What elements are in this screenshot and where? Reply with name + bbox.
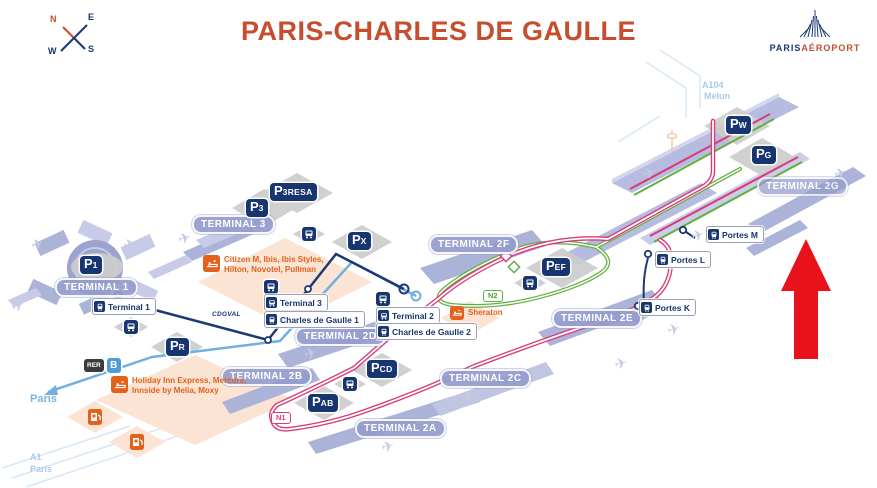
station-terminal-2[interactable]: Terminal 2 [376, 307, 440, 324]
hotel-bed-icon [203, 255, 220, 272]
station-portes-l[interactable]: Portes L [655, 251, 711, 268]
parking-pw[interactable]: PW [726, 116, 751, 134]
compass-n: N [50, 14, 57, 24]
terminal-3-badge[interactable]: TERMINAL 3 [192, 215, 275, 234]
parking-pg[interactable]: PG [752, 146, 776, 164]
terminal-2c-badge[interactable]: TERMINAL 2C [440, 369, 531, 388]
bus-icon [266, 297, 277, 308]
bus-stop-icon [376, 292, 390, 306]
plane-icon: ✈ [176, 228, 194, 249]
station-portes-k[interactable]: Portes K [639, 299, 696, 316]
hotel-sheraton[interactable]: Sheraton [450, 306, 503, 320]
parking-pcd[interactable]: PCD [367, 360, 397, 378]
station-terminal-1[interactable]: Terminal 1 [92, 298, 156, 315]
road-n1-box: N1 [271, 412, 291, 424]
road-n2-box: N2 [483, 290, 503, 302]
rer-b-badge[interactable]: RER B [84, 358, 121, 373]
terminal-1-badge[interactable]: TERMINAL 1 [55, 278, 138, 297]
eiffel-rays-icon [793, 8, 837, 38]
compass-w: W [48, 46, 57, 56]
station-charles-de-gaulle-1[interactable]: Charles de Gaulle 1 [264, 311, 365, 328]
bus-stop-icon [523, 276, 537, 290]
hotel-group-roissypole[interactable]: Holiday Inn Express, Mercure, Innside by… [111, 376, 246, 395]
bus-stop-icon [302, 227, 316, 241]
plane-icon: ✈ [665, 319, 682, 340]
parking-px[interactable]: PX [348, 232, 371, 250]
red-annotation-arrow [781, 239, 831, 359]
station-charles-de-gaulle-2[interactable]: Charles de Gaulle 2 [376, 323, 477, 340]
parking-p3resa[interactable]: P3RESA [270, 183, 317, 201]
plane-icon: ✈ [689, 225, 706, 246]
rer-icon: RER [84, 359, 104, 372]
station-portes-m[interactable]: Portes M [706, 226, 764, 243]
train-icon [708, 229, 719, 240]
terminal-2a-badge[interactable]: TERMINAL 2A [355, 419, 446, 438]
bus-stop-icon [124, 320, 138, 334]
compass-e: E [88, 12, 94, 22]
parking-pab[interactable]: PAB [308, 394, 338, 412]
road-a1-label: A1 [30, 452, 42, 462]
hotel-bed-icon [450, 306, 464, 320]
parking-pef[interactable]: PEF [542, 258, 570, 276]
logo-word-aeroport: AÉROPORT [801, 43, 860, 53]
plane-icon: ✈ [29, 234, 47, 255]
station-terminal-3[interactable]: Terminal 3 [264, 294, 328, 311]
paris-aeroport-logo: PARISAÉROPORT [769, 8, 861, 53]
train-icon [641, 302, 652, 313]
logo-word-paris: PARIS [770, 43, 802, 53]
hotel-bed-icon [111, 376, 128, 393]
compass-s: S [88, 44, 94, 54]
road-a1-paris-label: Paris [30, 464, 52, 474]
parking-pr[interactable]: PR [166, 338, 189, 356]
parking-p1[interactable]: P1 [80, 256, 102, 274]
parking-p3[interactable]: P3 [246, 199, 268, 217]
train-icon [94, 301, 105, 312]
train-icon [266, 314, 277, 325]
road-a104-label: A104 [702, 80, 724, 90]
cdgval-label: CDGVAL [212, 311, 241, 318]
terminal-2e-badge[interactable]: TERMINAL 2E [552, 309, 642, 328]
train-icon [378, 326, 389, 337]
hotel-group-terminal-3[interactable]: Citizen M, Ibis, Ibis Styles, Hilton, No… [203, 255, 324, 274]
plane-icon: ✈ [612, 353, 629, 374]
airport-map-page: ✈ ✈ ✈ ✈ ✈ ✈ ✈ ✈ ✈ ✈ ✈ ✈ ✈ [0, 0, 877, 488]
terminal-2g-badge[interactable]: TERMINAL 2G [757, 177, 848, 196]
terminal-2d-badge[interactable]: TERMINAL 2D [295, 327, 386, 346]
plane-icon: ✈ [379, 436, 396, 457]
compass-icon: N E W S [22, 6, 92, 61]
page-title: PARIS-CHARLES DE GAULLE [241, 16, 636, 47]
rer-line-b: B [107, 358, 121, 373]
terminal-2f-badge[interactable]: TERMINAL 2F [429, 235, 518, 254]
train-icon [657, 254, 668, 265]
road-melun-label: Melun [704, 91, 730, 101]
bus-stop-icon [343, 377, 357, 391]
rer-paris-label: Paris [30, 394, 57, 404]
bus-stop-icon [264, 280, 278, 294]
bus-icon [378, 310, 389, 321]
